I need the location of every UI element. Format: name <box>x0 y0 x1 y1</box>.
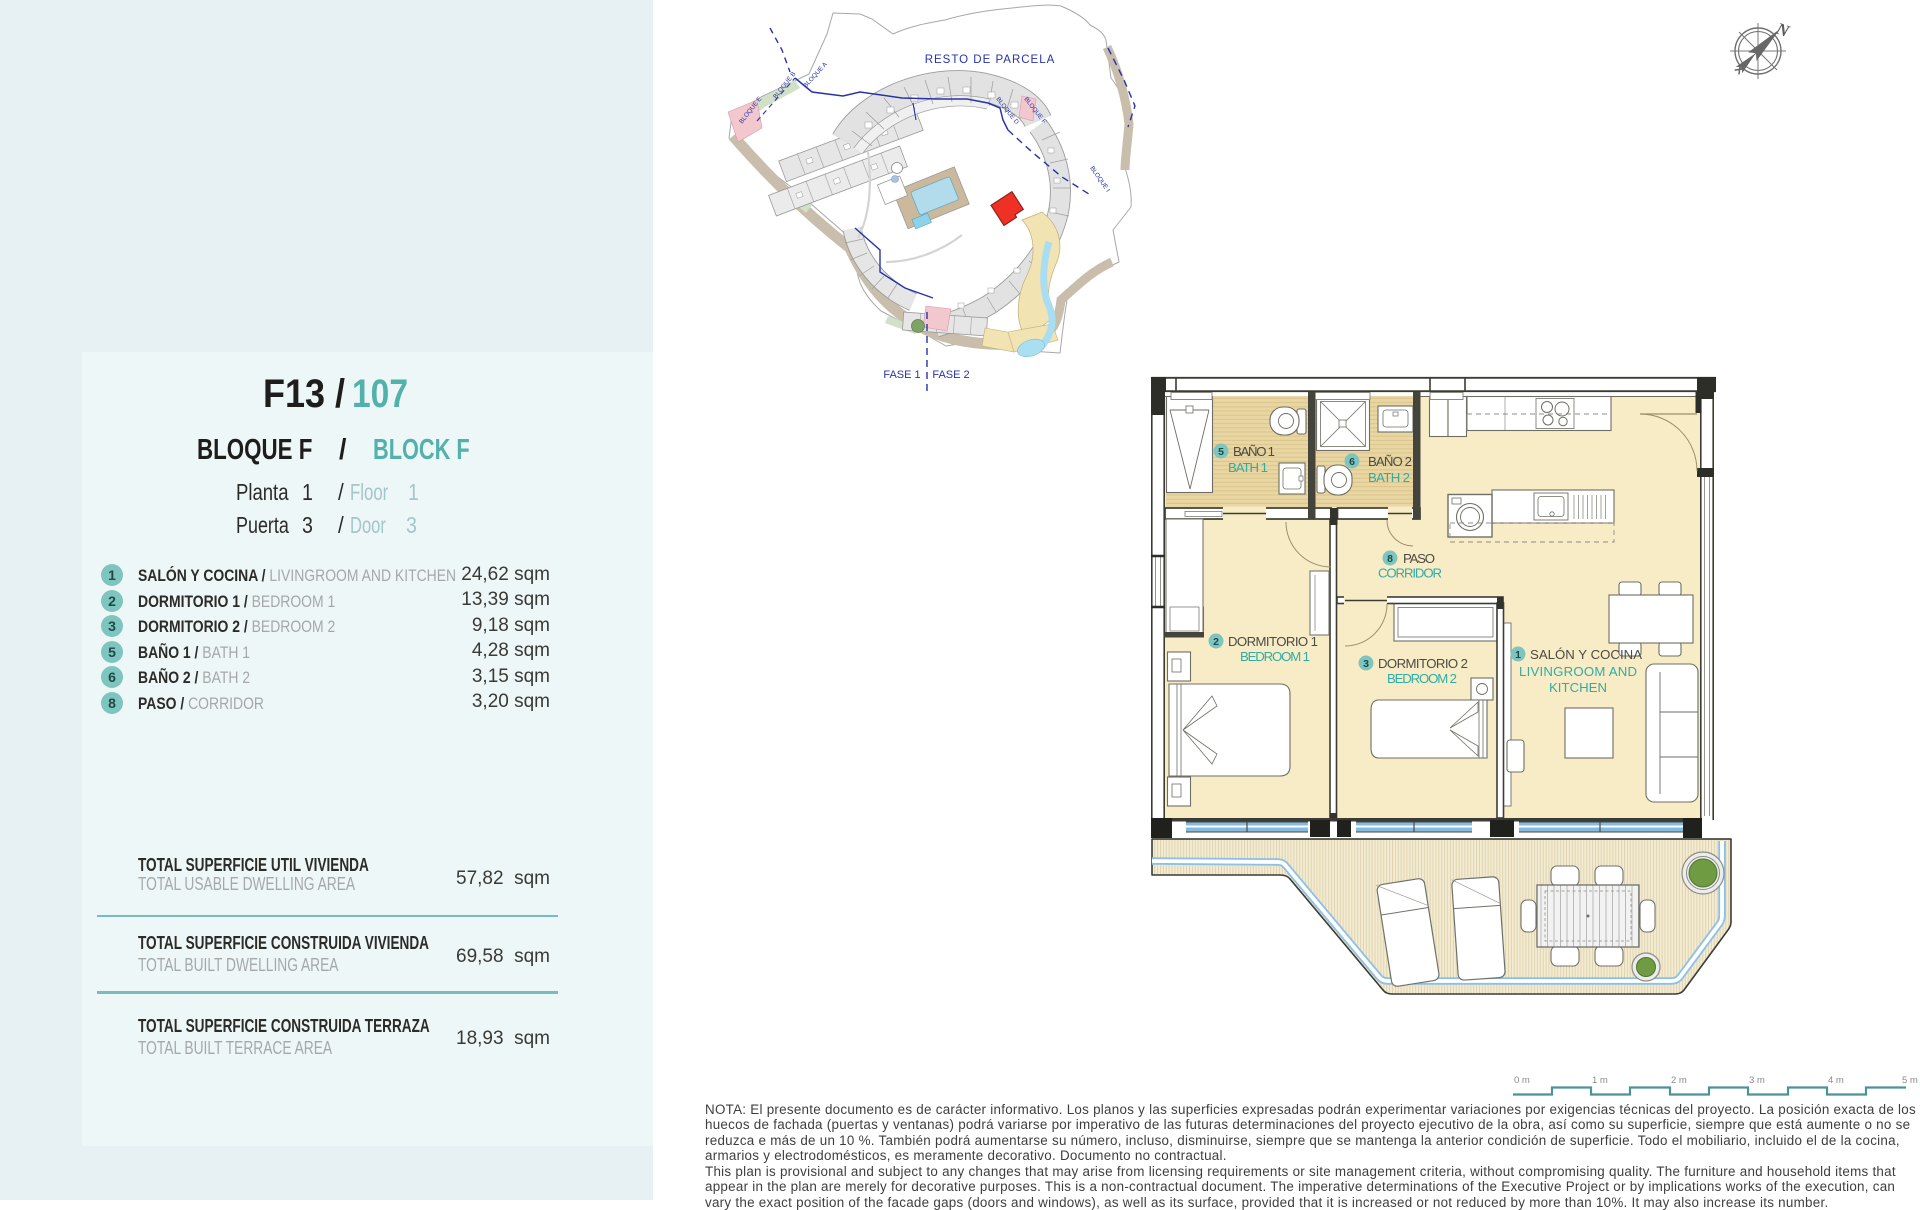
svg-text:KITCHEN: KITCHEN <box>1549 680 1607 695</box>
svg-text:BATH 1: BATH 1 <box>1228 460 1268 475</box>
svg-text:BEDROOM 2: BEDROOM 2 <box>1387 671 1457 686</box>
svg-text:0 m: 0 m <box>1514 1075 1530 1086</box>
svg-text:SALÓN Y COCINA: SALÓN Y COCINA <box>1530 647 1642 662</box>
svg-text:5 m: 5 m <box>1902 1075 1918 1086</box>
svg-text:BAÑO 2: BAÑO 2 <box>1368 454 1412 469</box>
svg-text:LIVINGROOM AND: LIVINGROOM AND <box>1519 664 1637 679</box>
svg-text:1: 1 <box>1515 649 1521 661</box>
svg-text:CORRIDOR: CORRIDOR <box>1378 566 1442 581</box>
svg-text:BATH 2: BATH 2 <box>1368 470 1410 485</box>
svg-text:2: 2 <box>1213 636 1219 648</box>
svg-text:DORMITORIO 1: DORMITORIO 1 <box>1228 634 1318 649</box>
svg-text:N: N <box>1773 19 1793 42</box>
svg-text:PASO: PASO <box>1403 551 1435 566</box>
svg-text:3 m: 3 m <box>1749 1075 1765 1086</box>
svg-text:BEDROOM 1: BEDROOM 1 <box>1240 649 1310 664</box>
svg-text:8: 8 <box>1387 553 1393 565</box>
svg-text:6: 6 <box>1349 456 1355 468</box>
svg-text:2 m: 2 m <box>1671 1075 1687 1086</box>
svg-text:FASE 1: FASE 1 <box>883 369 920 381</box>
svg-text:FASE 2: FASE 2 <box>932 369 969 381</box>
svg-text:1 m: 1 m <box>1592 1075 1608 1086</box>
svg-text:RESTO DE PARCELA: RESTO DE PARCELA <box>925 54 1056 66</box>
svg-text:DORMITORIO 2: DORMITORIO 2 <box>1378 656 1468 671</box>
svg-text:BAÑO 1: BAÑO 1 <box>1233 444 1275 459</box>
svg-text:4 m: 4 m <box>1828 1075 1844 1086</box>
svg-text:5: 5 <box>1218 446 1224 458</box>
svg-text:3: 3 <box>1363 658 1369 670</box>
